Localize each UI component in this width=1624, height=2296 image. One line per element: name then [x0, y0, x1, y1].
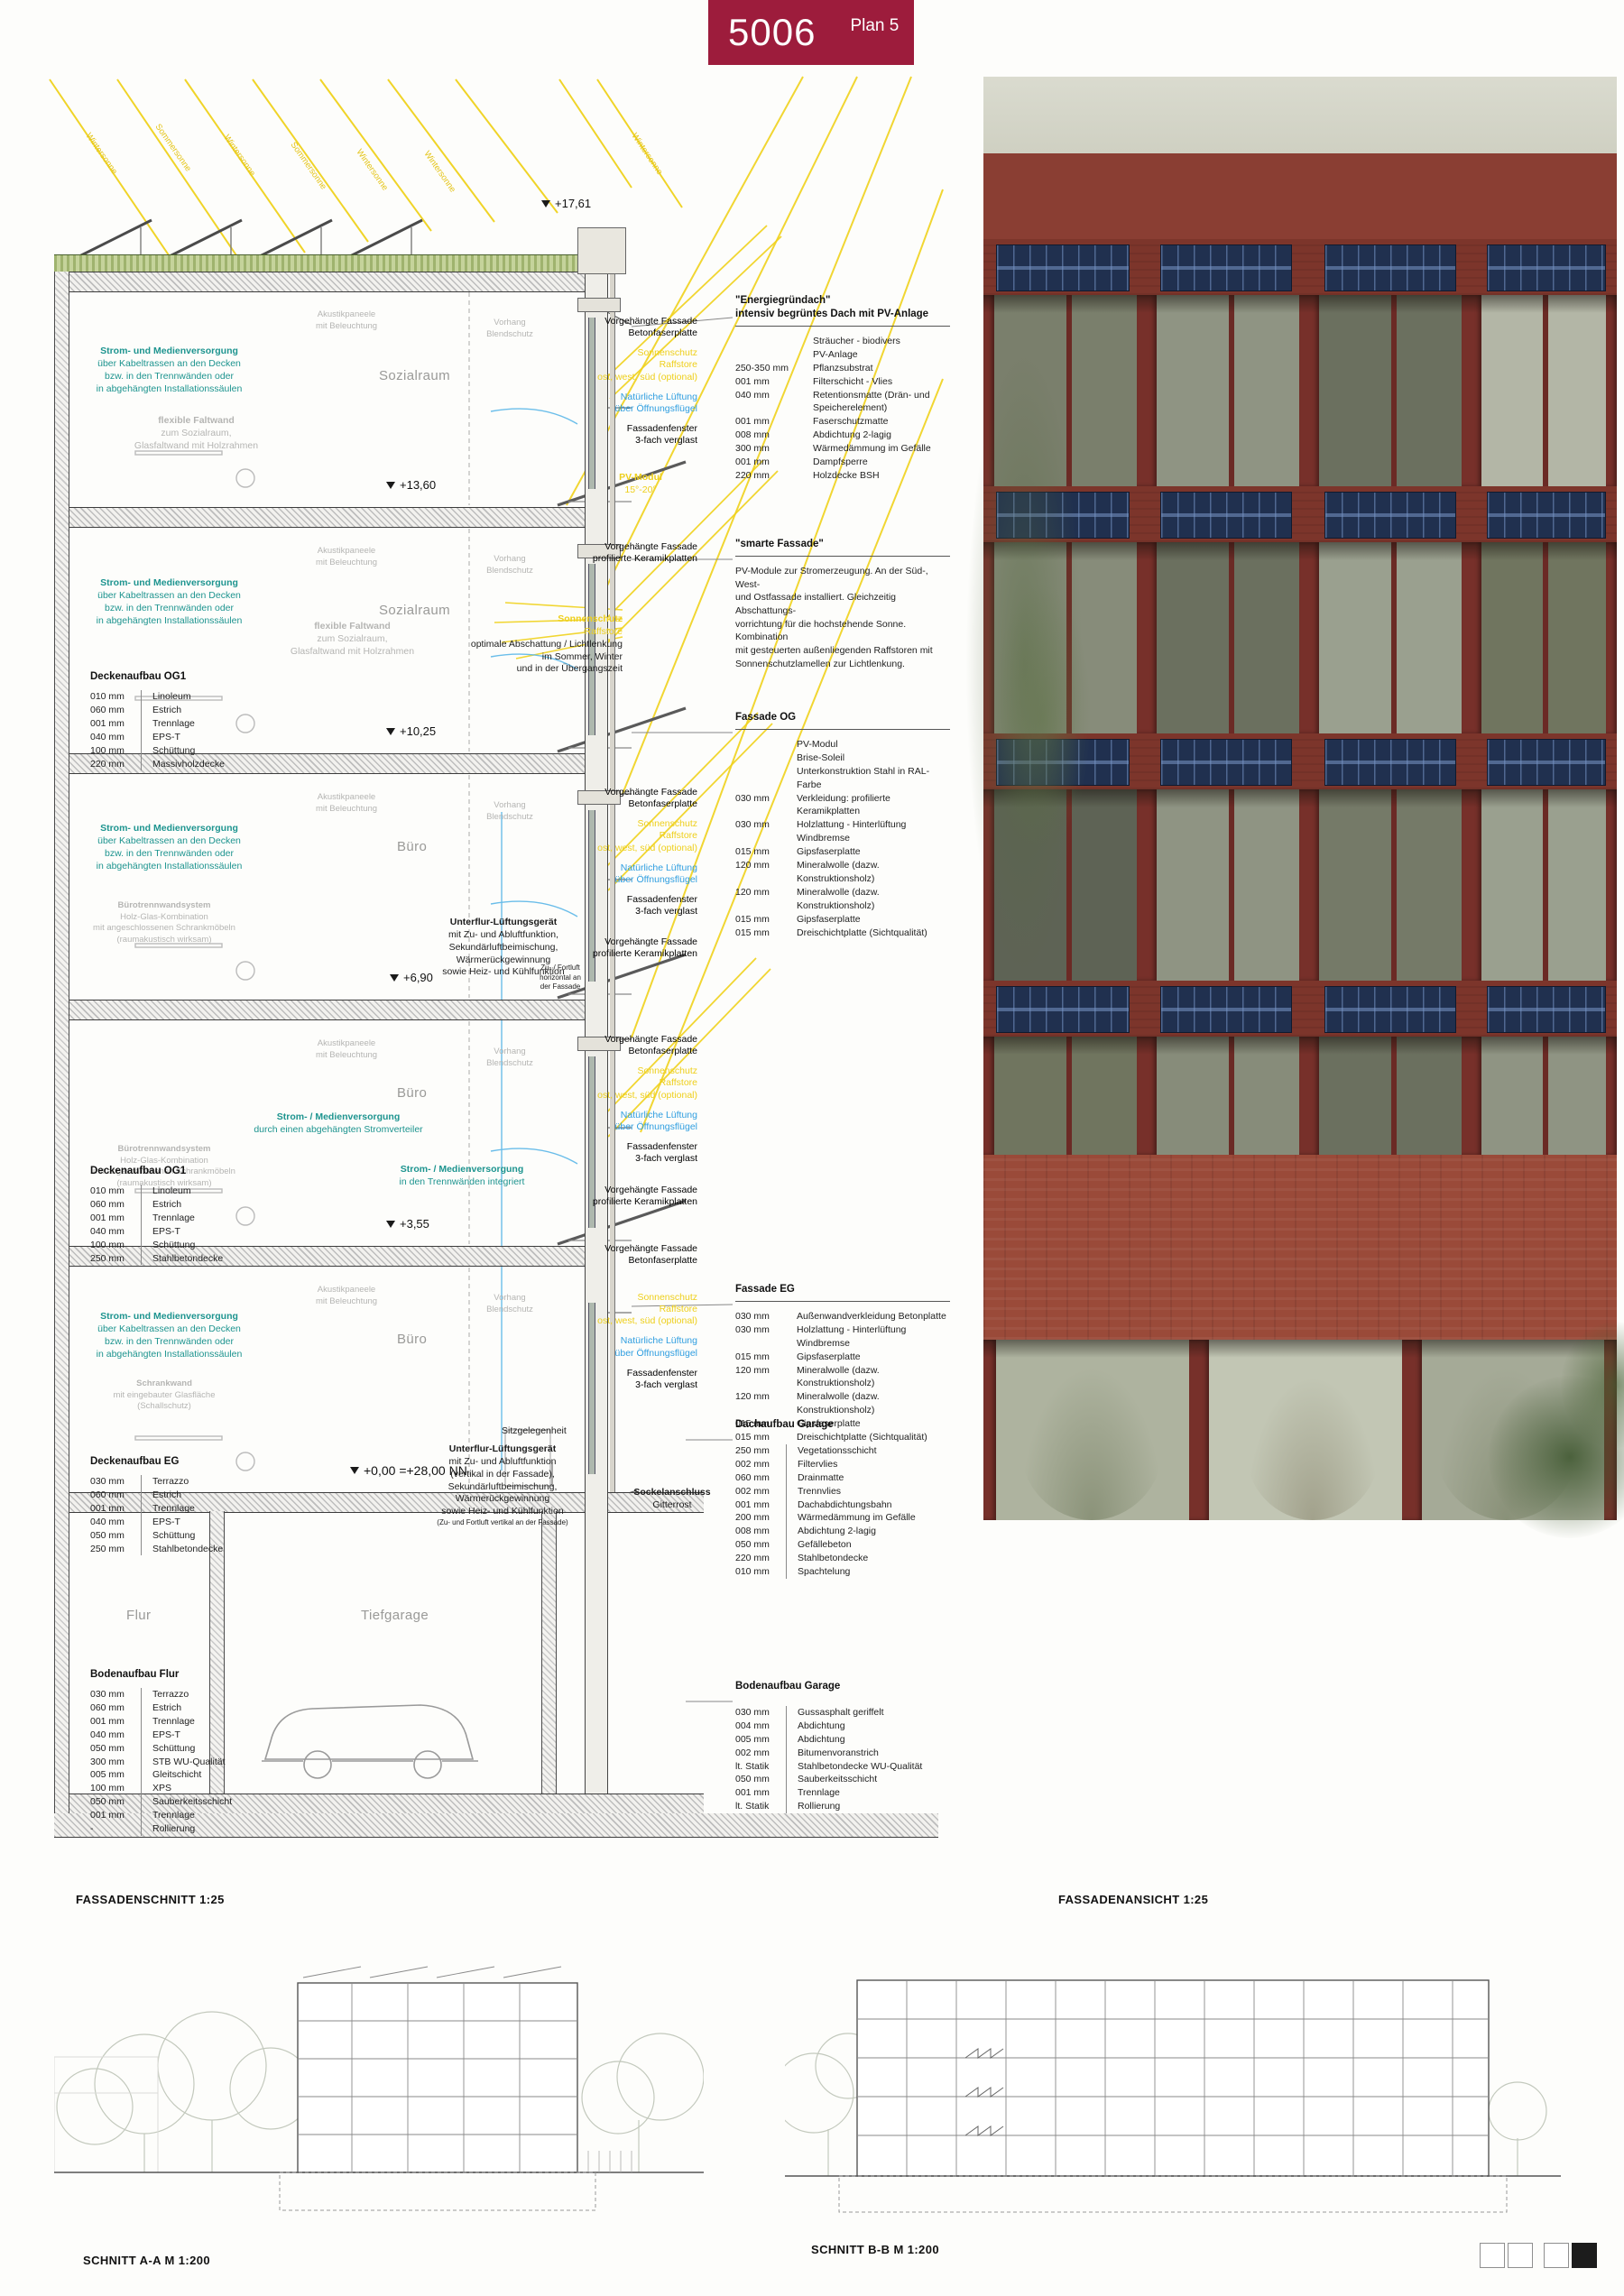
layer-thickness: 120 mm	[735, 1390, 786, 1417]
level-value: +10,25	[400, 724, 436, 738]
label-title: Natürliche Lüftung	[531, 862, 697, 874]
eg-texture-band	[983, 1155, 1617, 1340]
layer-material: Mineralwolle (dazw. Konstruktionsholz)	[786, 1390, 950, 1417]
layer-material: Rollierung	[141, 1822, 195, 1836]
label-title: Fassadenfenster	[531, 423, 697, 435]
layer-thickness	[735, 1337, 786, 1351]
layer-thickness: lt. Statik	[735, 1760, 786, 1774]
layer-material: Mineralwolle (dazw. Konstruktionsholz)	[786, 886, 950, 913]
layer-thickness: 030 mm	[735, 1323, 786, 1337]
note-line: in abgehängten Installationssäulen	[86, 1349, 253, 1361]
layer-row: 060 mmEstrich	[90, 704, 225, 717]
parapet	[577, 227, 626, 274]
note-line: Wärmerückgewinnung	[417, 1493, 588, 1506]
layer-row: 100 mmSchüttung	[90, 744, 225, 758]
level-triangle-icon	[386, 728, 395, 735]
note-line: mit eingebauter Glasfläche	[83, 1390, 245, 1402]
label-schnitt-aa: SCHNITT A-A M 1:200	[83, 2254, 210, 2267]
note-line: Akustikpaneele	[296, 792, 397, 804]
layer-row: 001 mmTrennlage	[90, 1809, 232, 1822]
label-title: Fassadenfenster	[531, 1141, 697, 1153]
layer-thickness: 001 mm	[735, 375, 802, 389]
layer-thickness: 002 mm	[735, 1485, 786, 1498]
layer-material: Drainmatte	[786, 1471, 844, 1485]
label-title: Vorgehängte Fassade	[531, 541, 697, 553]
layer-row: 001 mmTrennlage	[90, 1212, 223, 1225]
layer-material: Vegetationsschicht	[786, 1444, 877, 1458]
layer-material: Verkleidung: profilierte Keramikplatten	[786, 792, 950, 819]
layer-material: Pflanzsubstrat	[802, 362, 873, 375]
note-line: Raffstore	[531, 1304, 697, 1315]
layer-row: 015 mmGipsfaserplatte	[735, 913, 950, 927]
note-line: ost, west, süd (optional)	[531, 1090, 697, 1102]
layer-thickness: 005 mm	[90, 1768, 141, 1782]
layer-thickness: 001 mm	[735, 1786, 786, 1800]
label-vf-keramik: Vorgehängte Fassadeprofilierte Keramikpl…	[531, 541, 697, 565]
label-vf-beton: Vorgehängte FassadeBetonfaserplatte	[531, 316, 697, 339]
layer-row: 015 mmGipsfaserplatte	[735, 1351, 950, 1364]
layer-row: 001 mmTrennlage	[90, 1715, 232, 1729]
sheet-index-squares	[1480, 2243, 1597, 2268]
layer-material: Holzlattung - Hinterlüftung	[786, 818, 906, 832]
aufbau-title: Deckenaufbau EG	[90, 1456, 223, 1467]
note-line: Sekundärluftbeimischung,	[422, 942, 585, 954]
layer-material: Terrazzo	[141, 1688, 189, 1701]
label-sonnenschutz: SonnenschutzRaffstoreost, west, süd (opt…	[531, 1065, 697, 1101]
layer-row: 010 mmLinoleum	[90, 1185, 223, 1198]
note-power-supply: Strom- und Medienversorgung über Kabeltr…	[86, 823, 253, 872]
layer-thickness: 005 mm	[735, 1733, 786, 1747]
note-akustik: Akustikpaneelemit Beleuchtung	[296, 1285, 397, 1307]
schnitt-bb-drawing	[785, 1931, 1561, 2228]
room-label: Büro	[397, 1332, 427, 1347]
layer-row: Windbremse	[735, 1337, 950, 1351]
layer-row: 200 mmWärmedämmung im Gefälle	[735, 1511, 950, 1525]
layer-thickness: 008 mm	[735, 1525, 786, 1538]
label-fenster: Fassadenfenster3-fach verglast	[531, 423, 697, 447]
layer-row: 120 mmMineralwolle (dazw. Konstruktionsh…	[735, 859, 950, 886]
note-line: mit gesteuerten außenliegenden Raffstore…	[735, 644, 950, 658]
label-title: Vorgehängte Fassade	[531, 316, 697, 327]
label-vf-beton: Vorgehängte FassadeBetonfaserplatte	[531, 1034, 697, 1057]
layer-thickness	[735, 738, 786, 752]
note-lueftungsgeraet-eg: Unterflur-Lüftungsgerät mit Zu- und Ablu…	[417, 1443, 588, 1528]
note-title: Strom- und Medienversorgung	[86, 577, 253, 590]
layer-material: Außenwandverkleidung Betonplatte	[786, 1310, 946, 1323]
note-line: mit Beleuchtung	[296, 321, 397, 333]
note-line: Akustikpaneele	[296, 1285, 397, 1296]
layer-row: 015 mmDreischichtplatte (Sichtqualität)	[735, 927, 950, 940]
layer-thickness: lt. Statik	[735, 1800, 786, 1813]
layer-thickness: 050 mm	[735, 1773, 786, 1786]
layer-material: Stahlbetondecke	[141, 1543, 223, 1556]
rnote-title: "Energiegründach"intensiv begrüntes Dach…	[735, 294, 950, 327]
layer-row: 050 mmGefällebeton	[735, 1538, 950, 1552]
layer-row: 030 mmTerrazzo	[90, 1475, 223, 1489]
layer-row: 001 mmDachabdichtungsbahn	[735, 1498, 950, 1512]
note-trennwand: Bürotrennwandsystem Holz-Glas-Kombinatio…	[83, 900, 245, 945]
layer-thickness: 001 mm	[90, 1502, 141, 1516]
aufbau-title: Bodenaufbau Flur	[90, 1669, 232, 1680]
layer-row: Brise-Soleil	[735, 752, 950, 765]
layer-thickness: 015 mm	[735, 1351, 786, 1364]
layer-row: 004 mmAbdichtung	[735, 1720, 950, 1733]
layer-thickness: 030 mm	[90, 1688, 141, 1701]
layer-thickness: 030 mm	[90, 1475, 141, 1489]
layer-row: 250 mmStahlbetondecke	[90, 1252, 223, 1266]
layer-material: Gefällebeton	[786, 1538, 852, 1552]
left-wall	[54, 272, 69, 1813]
aufbau-decke-og1: Deckenaufbau OG1 010 mmLinoleum060 mmEst…	[90, 1166, 223, 1265]
layer-thickness: 001 mm	[735, 456, 802, 469]
layer-material: Abdichtung 2-lagig	[786, 1525, 876, 1538]
note-title: Bürotrennwandsystem	[83, 900, 245, 912]
tree-reflection	[992, 582, 1092, 853]
layer-row: 001 mmFilterschicht - Vlies	[735, 375, 950, 389]
layer-thickness: 015 mm	[735, 913, 786, 927]
facade-label-group: Vorgehängte FassadeBetonfaserplatte Sonn…	[531, 787, 697, 926]
layer-thickness: 010 mm	[90, 1185, 141, 1198]
note-line: Betonfaserplatte	[531, 327, 697, 339]
note-line: ost, west, süd (optional)	[531, 372, 697, 383]
note-line: sowie Heiz- und Kühlfunktion	[417, 1506, 588, 1518]
note-line: mit Beleuchtung	[296, 558, 397, 569]
layer-material: Gipsfaserplatte	[786, 913, 861, 927]
note-line: in den Trennwänden integriert	[399, 1176, 525, 1189]
layer-material: XPS	[141, 1782, 171, 1795]
rnote-bodenaufbau-garage: Bodenaufbau Garage 030 mmGussasphalt ger…	[735, 1680, 950, 1813]
note-line: profilierte Keramikplatten	[531, 553, 697, 565]
floor-slab	[54, 507, 585, 528]
note-footnote: (Zu- und Fortluft vertikal an der Fassad…	[417, 1518, 588, 1528]
layer-material: Gleitschicht	[141, 1768, 201, 1782]
label-fassadenansicht: FASSADENANSICHT 1:25	[1058, 1893, 1208, 1906]
note-line: mit angeschlossenen Schrankmöbeln	[83, 923, 245, 935]
label-title: Fassadenfenster	[531, 1368, 697, 1379]
note-title: Unterflur-Lüftungsgerät	[422, 917, 585, 929]
layer-material: Windbremse	[786, 1337, 850, 1351]
raffstore-box	[577, 298, 621, 312]
layer-row: 030 mmHolzlattung - Hinterlüftung	[735, 818, 950, 832]
layer-row: 050 mmSauberkeitsschicht	[735, 1773, 950, 1786]
layer-material: Terrazzo	[141, 1475, 189, 1489]
layer-row: 040 mmEPS-T	[90, 1225, 223, 1239]
layer-thickness: 040 mm	[90, 1225, 141, 1239]
note-title: Strom- / Medienversorgung	[253, 1111, 424, 1124]
layer-thickness: 040 mm	[735, 389, 802, 416]
note-line: Akustikpaneele	[296, 1038, 397, 1050]
window-band	[983, 1037, 1617, 1155]
green-roof	[54, 254, 579, 272]
layer-row: 300 mmWärmedämmung im Gefälle	[735, 442, 950, 456]
layer-row: 001 mmTrennlage	[90, 717, 225, 731]
layer-row: 030 mmAußenwandverkleidung Betonplatte	[735, 1310, 950, 1323]
layer-thickness: 040 mm	[90, 1729, 141, 1742]
layer-material: PV-Anlage	[802, 348, 858, 362]
label-title: Natürliche Lüftung	[531, 1335, 697, 1347]
label-sonnenschutz: SonnenschutzRaffstoreost, west, süd (opt…	[531, 347, 697, 383]
note-line: Glasfaltwand mit Holzrahmen	[104, 440, 289, 453]
note-line: mit Beleuchtung	[296, 1296, 397, 1308]
layer-material: Dreischichtplatte (Sichtqualität)	[786, 927, 927, 940]
layer-material: Trennlage	[141, 1212, 195, 1225]
aufbau-decke-eg: Deckenaufbau EG 030 mmTerrazzo060 mmEstr…	[90, 1456, 223, 1555]
layer-thickness: 200 mm	[735, 1511, 786, 1525]
level-marker: +13,60	[386, 478, 436, 492]
layer-thickness: 030 mm	[735, 1706, 786, 1720]
layer-material: Unterkonstruktion Stahl in RAL-Farbe	[786, 765, 950, 792]
rnote-fassade-og: Fassade OG PV-ModulBrise-SoleilUnterkons…	[735, 711, 950, 940]
note-line: mit Zu- und Abluftfunktion	[417, 1456, 588, 1469]
layer-thickness: 300 mm	[735, 442, 802, 456]
note-line: Raffstore	[531, 830, 697, 842]
layer-material: Spachtelung	[786, 1565, 850, 1579]
index-square-active	[1572, 2243, 1597, 2268]
layer-row: 008 mmAbdichtung 2-lagig	[735, 1525, 950, 1538]
layer-material: Holzdecke BSH	[802, 469, 880, 483]
layer-material: Abdichtung	[786, 1720, 845, 1733]
note-line: über Öffnungsflügel	[531, 1348, 697, 1360]
note-zufortluft: Zu- / Fortlufthorizontal ander Fassade	[528, 964, 593, 992]
layer-thickness: 008 mm	[735, 429, 802, 442]
note-title: Strom- und Medienversorgung	[86, 823, 253, 835]
label-title: Vorgehängte Fassade	[531, 1243, 697, 1255]
layer-material: Trennlage	[141, 717, 195, 731]
note-akustik: Akustikpaneelemit Beleuchtung	[296, 792, 397, 815]
layer-row: lt. StatikRollierung	[735, 1800, 950, 1813]
layer-material: Massivholzdecke	[141, 758, 225, 771]
facade-render	[983, 77, 1617, 1520]
layer-row: PV-Anlage	[735, 348, 950, 362]
note-power-supply: Strom- und Medienversorgung über Kabeltr…	[86, 577, 253, 627]
note-line: bzw. in den Trennwänden oder	[86, 371, 253, 383]
note-line: Raffstore	[531, 1077, 697, 1089]
level-triangle-icon	[386, 482, 395, 489]
layer-material: Stahlbetondecke WU-Qualität	[786, 1760, 922, 1774]
note-line: über Öffnungsflügel	[531, 874, 697, 886]
note-title: Schrankwand	[83, 1379, 245, 1390]
layer-row: 060 mmEstrich	[90, 1198, 223, 1212]
layer-material: Estrich	[141, 704, 181, 717]
note-akustik: Akustikpaneelemit Beleuchtung	[296, 546, 397, 568]
layer-row: 010 mmLinoleum	[90, 690, 225, 704]
note-line: Zu- / Fortluft	[528, 964, 593, 973]
note-line: (raumakustisch wirksam)	[83, 935, 245, 946]
layer-row: Windbremse	[735, 832, 950, 845]
note-line: Holz-Glas-Kombination	[83, 912, 245, 924]
note-line: mit Beleuchtung	[296, 1050, 397, 1062]
layer-row: Sträucher - biodivers	[735, 335, 950, 348]
layer-row: 060 mmDrainmatte	[735, 1471, 950, 1485]
note-line: profilierte Keramikplatten	[531, 1196, 697, 1208]
layer-thickness: 250-350 mm	[735, 362, 802, 375]
layer-thickness: 001 mm	[90, 1212, 141, 1225]
note-power-supply: Strom- und Medienversorgung über Kabeltr…	[86, 1311, 253, 1360]
rnote-title: "smarte Fassade"	[735, 538, 950, 557]
layer-thickness: 060 mm	[90, 1198, 141, 1212]
layer-thickness: 250 mm	[735, 1444, 786, 1458]
note-power-partition: Strom- / Medienversorgung in den Trennwä…	[399, 1164, 525, 1189]
layer-thickness: 060 mm	[735, 1471, 786, 1485]
sun-label: Wintersonne	[422, 149, 458, 194]
layer-thickness: 001 mm	[90, 1715, 141, 1729]
room-label: Tiefgarage	[361, 1608, 429, 1623]
layer-row: 002 mmFiltervlies	[735, 1458, 950, 1471]
layer-thickness: 100 mm	[90, 1782, 141, 1795]
layer-material: Schüttung	[141, 744, 195, 758]
note-line: mit Zu- und Abluftfunktion,	[422, 929, 585, 942]
layer-material: EPS-T	[141, 731, 180, 744]
layer-material: Gipsfaserplatte	[786, 1351, 861, 1364]
note-power-distributor: Strom- / Medienversorgung durch einen ab…	[253, 1111, 424, 1137]
note-line: über Öffnungsflügel	[531, 1121, 697, 1133]
level-triangle-icon	[386, 1221, 395, 1228]
label-schnitt-bb: SCHNITT B-B M 1:200	[811, 2243, 939, 2256]
note-line: über Öffnungsflügel	[531, 403, 697, 415]
note-line: und in der Übergangszeit	[379, 663, 623, 676]
layer-thickness: 300 mm	[90, 1756, 141, 1769]
layer-row: 050 mmSauberkeitsschicht	[90, 1795, 232, 1809]
layer-row: 220 mmStahlbetondecke	[735, 1552, 950, 1565]
schnitt-aa-drawing	[54, 1931, 704, 2228]
note-line: ost, west, süd (optional)	[531, 1315, 697, 1327]
layer-row: 220 mmMassivholzdecke	[90, 758, 225, 771]
layer-thickness: 120 mm	[735, 1364, 786, 1391]
layer-material: Estrich	[141, 1701, 181, 1715]
note-line: Gitterrost	[623, 1499, 722, 1512]
layer-row: 300 mmSTB WU-Qualität	[90, 1756, 232, 1769]
note-line: 3-fach verglast	[531, 1153, 697, 1165]
note-line: Akustikpaneele	[296, 309, 397, 321]
layer-row: 030 mmGussasphalt geriffelt	[735, 1706, 950, 1720]
label-fenster: Fassadenfenster3-fach verglast	[531, 1141, 697, 1165]
label-title: Fassadenfenster	[531, 894, 697, 906]
label-title: Vorgehängte Fassade	[531, 1034, 697, 1046]
layer-row: 100 mmSchüttung	[90, 1239, 223, 1252]
label-fenster: Fassadenfenster3-fach verglast	[531, 1368, 697, 1391]
rnote-energiegruendach: "Energiegründach"intensiv begrüntes Dach…	[735, 294, 950, 483]
layer-row: -Rollierung	[90, 1822, 232, 1836]
layer-material: Mineralwolle (dazw. Konstruktionsholz)	[786, 859, 950, 886]
layer-thickness: 220 mm	[90, 758, 141, 771]
layer-row: 001 mmDampfsperre	[735, 456, 950, 469]
layer-row: 005 mmGleitschicht	[90, 1768, 232, 1782]
index-square	[1544, 2243, 1569, 2268]
note-title: Unterflur-Lüftungsgerät	[417, 1443, 588, 1456]
layer-material: Trennlage	[141, 1715, 195, 1729]
label-title: Vorgehängte Fassade	[531, 787, 697, 798]
label-pv-modul: PV-Modul 15°-20°	[591, 472, 690, 497]
note-title: Strom- und Medienversorgung	[86, 1311, 253, 1323]
layer-row: 250 mmStahlbetondecke	[90, 1543, 223, 1556]
level-triangle-icon	[350, 1467, 359, 1474]
layer-row: 120 mmMineralwolle (dazw. Konstruktionsh…	[735, 1364, 950, 1391]
layer-thickness: 220 mm	[735, 1552, 786, 1565]
label-title: Sonnenschutz	[379, 613, 623, 626]
window-band	[983, 789, 1617, 981]
layer-row: 060 mmEstrich	[90, 1701, 232, 1715]
layer-thickness: 100 mm	[90, 744, 141, 758]
layer-material: Gussasphalt geriffelt	[786, 1706, 884, 1720]
layer-thickness: 030 mm	[735, 792, 786, 819]
layer-row: 008 mmAbdichtung 2-lagig	[735, 429, 950, 442]
label-sonnenschutz-og: Sonnenschutz Raffstore optimale Abschatt…	[379, 613, 623, 676]
layer-thickness: 001 mm	[90, 717, 141, 731]
note-line: und Ostfassade installiert. Gleichzeitig…	[735, 591, 950, 617]
layer-thickness: 040 mm	[90, 731, 141, 744]
layer-material: Estrich	[141, 1198, 181, 1212]
facade-label-group: Vorgehängte FassadeBetonfaserplatte Sonn…	[531, 1034, 697, 1173]
layer-row: Unterkonstruktion Stahl in RAL-Farbe	[735, 765, 950, 792]
note-title: Strom- / Medienversorgung	[399, 1164, 525, 1176]
layer-thickness: 050 mm	[90, 1742, 141, 1756]
sun-label: Wintersonne	[84, 131, 120, 176]
note-faltwand: flexible Faltwand zum Sozialraum,Glasfal…	[104, 415, 289, 453]
layer-material: Retentionsmatte (Drän- und Speichereleme…	[802, 389, 950, 416]
aufbau-title: Deckenaufbau OG1	[90, 671, 225, 682]
note-line: mit Beleuchtung	[296, 804, 397, 816]
floor-slab	[54, 1000, 585, 1020]
layer-thickness: 040 mm	[90, 1516, 141, 1529]
note-line: vorrichtung für die hochstehende Sonne. …	[735, 618, 950, 644]
layer-thickness: 060 mm	[90, 1701, 141, 1715]
layer-material: Dachabdichtungsbahn	[786, 1498, 892, 1512]
layer-thickness	[735, 335, 802, 348]
label-title: Sonnenschutz	[531, 1065, 697, 1077]
note-line: 3-fach verglast	[531, 435, 697, 447]
label-lueftung: Natürliche Lüftungüber Öffnungsflügel	[531, 392, 697, 415]
layer-thickness: 120 mm	[735, 859, 786, 886]
sun-label: Wintersonne	[355, 147, 391, 192]
facade-label-group: SonnenschutzRaffstoreost, west, süd (opt…	[531, 1292, 697, 1399]
sun-label: Sommersonne	[153, 122, 193, 173]
layer-row: lt. StatikStahlbetondecke WU-Qualität	[735, 1760, 950, 1774]
layer-thickness: 010 mm	[735, 1565, 786, 1579]
layer-thickness: 120 mm	[735, 886, 786, 913]
layer-material: Trennlage	[786, 1786, 840, 1800]
layer-thickness: 030 mm	[735, 818, 786, 832]
layer-row: 001 mmTrennlage	[735, 1786, 950, 1800]
aufbau-boden-flur: Bodenaufbau Flur 030 mmTerrazzo060 mmEst…	[90, 1669, 232, 1836]
layer-row: 002 mmBitumenvoranstrich	[735, 1747, 950, 1760]
layer-row: 050 mmSchüttung	[90, 1742, 232, 1756]
layer-thickness: 030 mm	[735, 1310, 786, 1323]
rnote-title: Fassade EG	[735, 1283, 950, 1302]
layer-thickness: 060 mm	[90, 1489, 141, 1502]
label-sonnenschutz: SonnenschutzRaffstoreost, west, süd (opt…	[531, 1292, 697, 1327]
layer-thickness: 050 mm	[735, 1538, 786, 1552]
pv-band	[983, 981, 1617, 1037]
aufbau-title: Deckenaufbau OG1	[90, 1166, 223, 1176]
layer-material: Stahlbetondecke	[786, 1552, 868, 1565]
sun-label: Wintersonne	[630, 132, 665, 177]
rnote-title: Dachaufbau Garage	[735, 1418, 950, 1436]
window-band	[983, 295, 1617, 486]
layer-row: 250 mmVegetationsschicht	[735, 1444, 950, 1458]
note-line: bzw. in den Trennwänden oder	[86, 603, 253, 615]
roof-slab	[54, 272, 585, 292]
rnote-title: Fassade OG	[735, 711, 950, 730]
layer-material: Faserschutzmatte	[802, 415, 888, 429]
note-title: flexible Faltwand	[104, 415, 289, 428]
layer-thickness	[735, 832, 786, 845]
note-line: Raffstore	[379, 626, 623, 639]
facade-label-group: Vorgehängte FassadeBetonfaserplatte Sonn…	[531, 316, 697, 455]
rnote-dachaufbau-garage: Dachaufbau Garage 250 mmVegetationsschic…	[735, 1418, 950, 1579]
note-line: über Kabeltrassen an den Decken	[86, 835, 253, 848]
note-akustik: Akustikpaneelemit Beleuchtung	[296, 309, 397, 332]
plan-sheet: 5006 Plan 5	[0, 0, 1624, 2296]
